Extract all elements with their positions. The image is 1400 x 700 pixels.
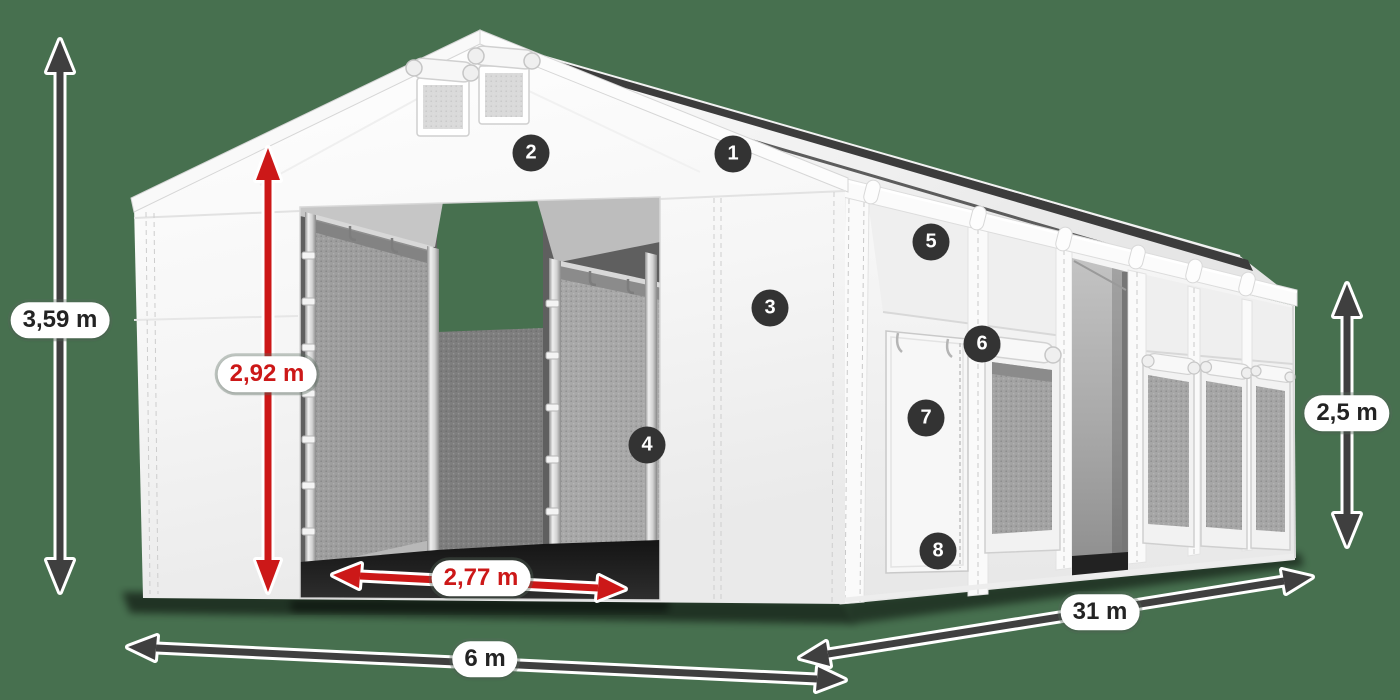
- dimension-label-length: 31 m: [1061, 594, 1140, 630]
- gable-vent-right: [468, 45, 540, 124]
- callout-badge-4: 4: [629, 427, 666, 464]
- callout-badge-3: 3: [752, 290, 789, 327]
- callout-badge-2: 2: [513, 135, 550, 172]
- callout-badge-7: 7: [908, 400, 945, 437]
- side-window: [984, 336, 1061, 553]
- side-entrance-gap: [1072, 258, 1128, 576]
- tent-illustration: [0, 0, 1400, 700]
- gable-vent-left: [406, 57, 479, 136]
- dimension-label-entrance-height: 2,92 m: [218, 356, 317, 392]
- dimension-label-width: 6 m: [452, 641, 517, 677]
- interior-mesh-panel-left: [311, 215, 433, 586]
- callout-badge-8: 8: [920, 533, 957, 570]
- callout-badge-6: 6: [964, 326, 1001, 363]
- tent-dimension-diagram: 3,59 m 2,92 m 2,77 m 2,5 m 6 m 31 m 1 2 …: [0, 0, 1400, 700]
- entrance-opening: [300, 193, 660, 605]
- dimension-label-entrance-width: 2,77 m: [432, 560, 531, 596]
- interior-mesh-panel-right: [553, 262, 660, 550]
- callout-badge-1: 1: [715, 136, 752, 173]
- dimension-label-total-height: 3,59 m: [11, 302, 110, 338]
- far-windows: [1142, 353, 1295, 550]
- callout-badge-5: 5: [913, 224, 950, 261]
- dimension-label-side-height: 2,5 m: [1304, 395, 1389, 431]
- side-wall: [840, 178, 1297, 604]
